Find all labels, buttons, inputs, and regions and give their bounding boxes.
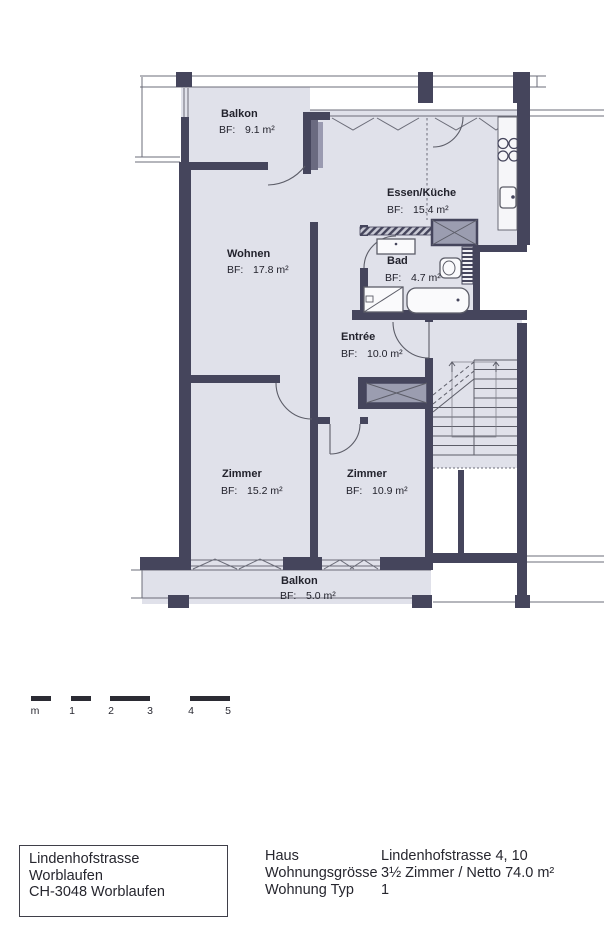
vent-icon (462, 247, 473, 284)
room-area-label: BF: (221, 485, 237, 497)
room-name-essen-kueche: Essen/Küche (387, 187, 456, 199)
scale-label-3: 3 (147, 705, 153, 717)
scale-label-5: 5 (225, 705, 231, 717)
address-line-1: Lindenhofstrasse (29, 851, 227, 868)
address-line-3: CH-3048 Worblaufen (29, 884, 227, 901)
bathtub-icon (407, 288, 469, 313)
room-name-bad: Bad (387, 255, 408, 267)
room-area-label: BF: (387, 204, 403, 216)
scale-label-1: 1 (69, 705, 75, 717)
room-area-value: 15.4 m² (413, 204, 449, 216)
washbasin-icon (377, 239, 415, 254)
scale-label-4: 4 (188, 705, 194, 717)
kitchen-fixtures (498, 117, 519, 230)
room-name-wohnen: Wohnen (227, 248, 270, 260)
scale-label-m: m (31, 705, 40, 717)
detail-row-haus: HausLindenhofstrasse 4, 10 (265, 848, 528, 864)
room-area-value: 10.0 m² (367, 348, 403, 360)
scale-bar: m 1 2 3 4 5 (31, 696, 231, 717)
room-name-entree: Entrée (341, 331, 375, 343)
room-area-value: 5.0 m² (306, 590, 336, 602)
room-area-label: BF: (385, 272, 401, 284)
detail-label: Wohnung Typ (265, 882, 381, 898)
detail-row-wohnung-typ: Wohnung Typ1 (265, 882, 389, 898)
room-area-label: BF: (227, 264, 243, 276)
room-area-label: BF: (280, 590, 296, 602)
detail-row-wohnungsgroesse: Wohnungsgrösse3½ Zimmer / Netto 74.0 m² (265, 865, 554, 881)
room-area-value: 10.9 m² (372, 485, 408, 497)
room-name-zimmer-2: Zimmer (347, 468, 387, 480)
room-name-zimmer-1: Zimmer (222, 468, 262, 480)
room-name-balkon-top: Balkon (221, 108, 258, 120)
room-area-label: BF: (341, 348, 357, 360)
floor-plan-page: Balkon BF: 9.1 m² Essen/Küche BF: 15.4 m… (0, 0, 605, 948)
room-area-label: BF: (219, 124, 235, 136)
detail-label: Haus (265, 848, 381, 864)
address-line-2: Worblaufen (29, 868, 227, 885)
detail-label: Wohnungsgrösse (265, 865, 381, 881)
detail-value: 3½ Zimmer / Netto 74.0 m² (381, 865, 554, 881)
room-area-value: 9.1 m² (245, 124, 275, 136)
room-area-value: 4.7 m² (411, 272, 441, 284)
detail-value: 1 (381, 882, 389, 898)
floor-plan-svg: Balkon BF: 9.1 m² Essen/Küche BF: 15.4 m… (0, 0, 605, 780)
room-name-balkon-bottom: Balkon (281, 575, 318, 587)
room-area-value: 15.2 m² (247, 485, 283, 497)
room-area-value: 17.8 m² (253, 264, 289, 276)
scale-label-2: 2 (108, 705, 114, 717)
detail-value: Lindenhofstrasse 4, 10 (381, 848, 528, 864)
room-area-label: BF: (346, 485, 362, 497)
address-box: Lindenhofstrasse Worblaufen CH-3048 Worb… (19, 845, 228, 917)
